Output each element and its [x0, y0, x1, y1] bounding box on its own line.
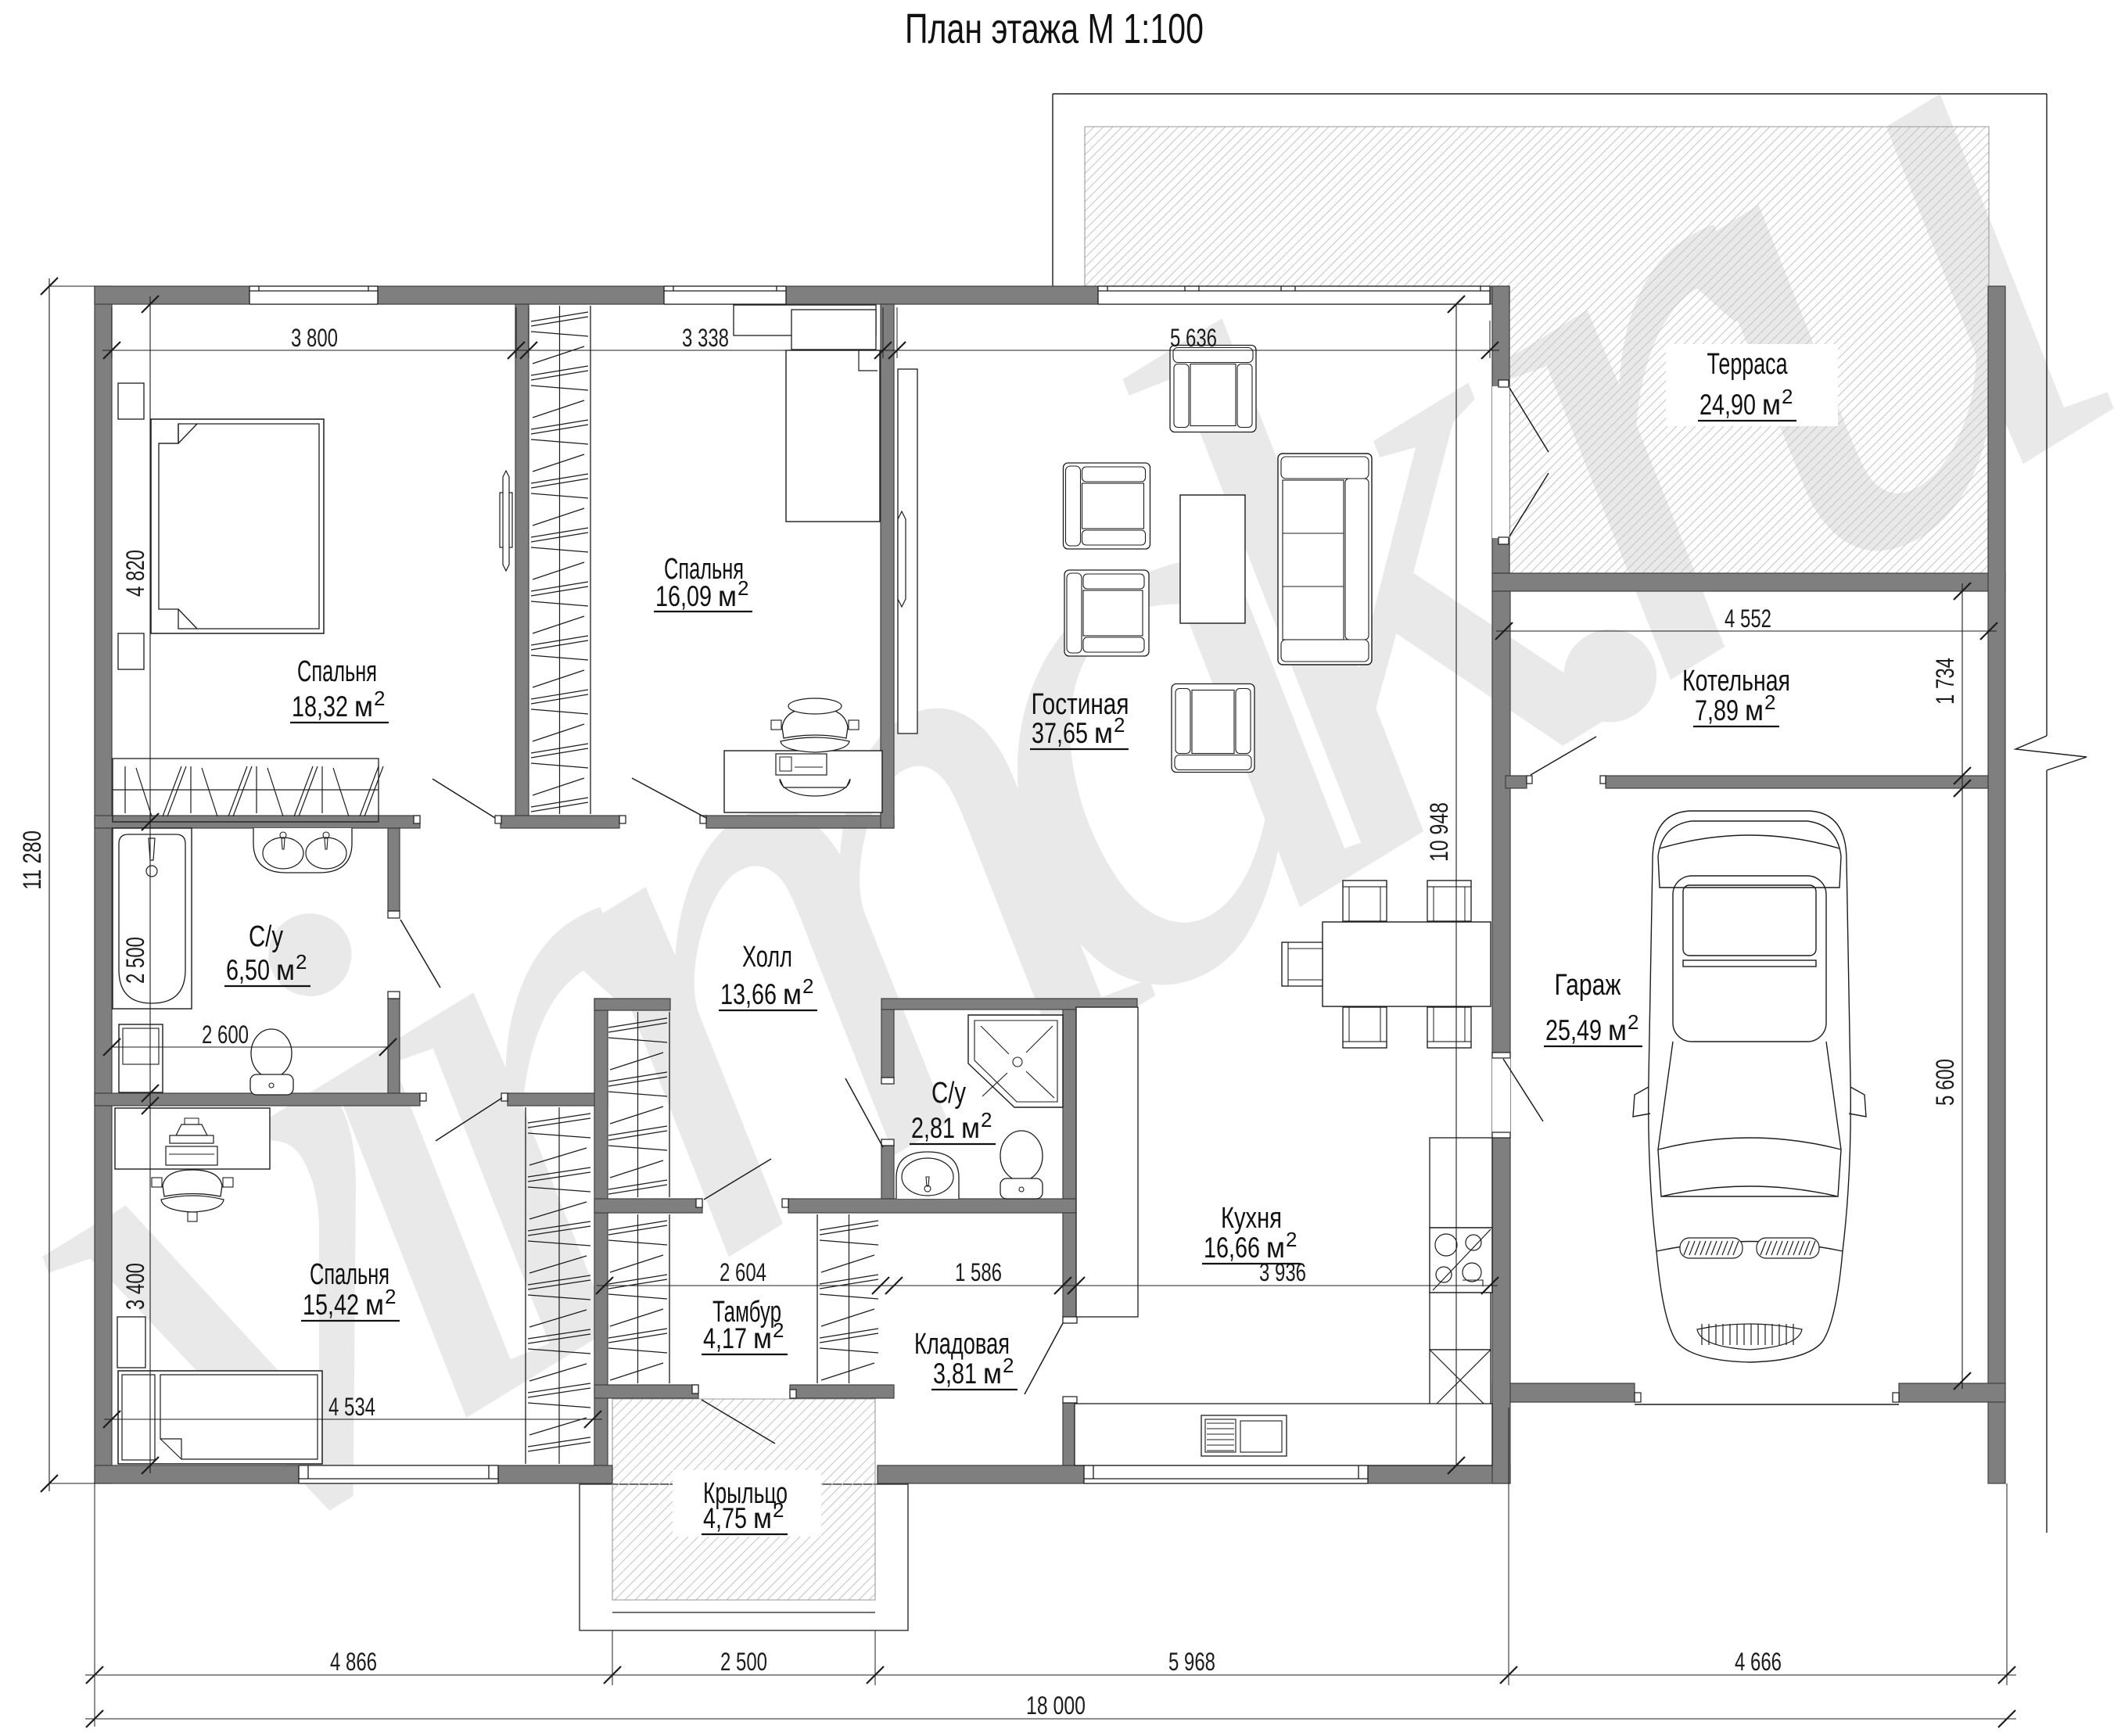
svg-text:3 400: 3 400 — [121, 1263, 149, 1310]
svg-text:Кладовая: Кладовая — [914, 1328, 1010, 1361]
svg-text:3 338: 3 338 — [682, 324, 729, 352]
svg-text:25,49: 25,49 — [1545, 1014, 1602, 1046]
svg-text:м: м — [1745, 694, 1764, 726]
svg-text:2 600: 2 600 — [202, 1020, 249, 1049]
svg-text:м: м — [1094, 717, 1113, 749]
svg-text:5 636: 5 636 — [1170, 324, 1217, 352]
svg-text:18 000: 18 000 — [1026, 1691, 1086, 1720]
svg-text:1 586: 1 586 — [955, 1258, 1002, 1286]
svg-text:24,90: 24,90 — [1699, 389, 1756, 421]
svg-text:4 552: 4 552 — [1725, 604, 1771, 633]
svg-text:м: м — [276, 954, 295, 986]
svg-text:2 604: 2 604 — [720, 1258, 766, 1286]
svg-text:2: 2 — [802, 974, 813, 998]
svg-text:2: 2 — [773, 1498, 784, 1522]
svg-text:4 866: 4 866 — [330, 1648, 377, 1676]
svg-text:4,75: 4,75 — [703, 1502, 747, 1534]
svg-text:2: 2 — [981, 1108, 992, 1132]
svg-text:18,32: 18,32 — [292, 690, 348, 723]
svg-text:2: 2 — [1628, 1010, 1638, 1034]
svg-text:2: 2 — [374, 687, 385, 710]
svg-text:4 666: 4 666 — [1735, 1648, 1782, 1676]
svg-text:4,17: 4,17 — [703, 1322, 747, 1354]
svg-text:Гараж: Гараж — [1555, 969, 1621, 1002]
svg-text:м: м — [365, 1289, 384, 1321]
svg-text:м: м — [753, 1322, 772, 1354]
svg-text:37,65: 37,65 — [1032, 717, 1088, 749]
svg-text:м: м — [1762, 389, 1781, 421]
svg-text:2: 2 — [1286, 1228, 1297, 1251]
svg-text:м: м — [1266, 1232, 1285, 1264]
svg-text:Терраса: Терраса — [1707, 348, 1789, 381]
svg-text:Спальня: Спальня — [310, 1258, 389, 1291]
svg-text:2: 2 — [296, 950, 307, 974]
svg-text:10 948: 10 948 — [1425, 802, 1453, 862]
svg-text:2: 2 — [1114, 713, 1125, 737]
svg-text:2: 2 — [385, 1285, 396, 1308]
svg-text:4 820: 4 820 — [121, 550, 149, 597]
svg-text:2 500: 2 500 — [121, 937, 149, 984]
svg-text:5 600: 5 600 — [1931, 1059, 1959, 1106]
svg-text:м: м — [783, 978, 802, 1010]
svg-text:5 968: 5 968 — [1168, 1648, 1215, 1676]
svg-text:15,42: 15,42 — [303, 1289, 359, 1321]
svg-text:План этажа М 1:100: План этажа М 1:100 — [905, 5, 1204, 52]
svg-text:Спальня: Спальня — [297, 655, 377, 688]
svg-text:11 280: 11 280 — [18, 830, 46, 890]
svg-text:Кухня: Кухня — [1221, 1202, 1282, 1235]
svg-text:м: м — [718, 580, 737, 612]
svg-text:С/у: С/у — [249, 920, 283, 953]
svg-text:2: 2 — [1764, 690, 1775, 714]
svg-text:Холл: Холл — [742, 941, 792, 974]
svg-text:3,81: 3,81 — [933, 1358, 977, 1390]
svg-text:7,89: 7,89 — [1695, 694, 1739, 726]
svg-text:16,09: 16,09 — [655, 580, 712, 612]
svg-text:2: 2 — [773, 1318, 784, 1342]
svg-text:3 800: 3 800 — [291, 324, 338, 352]
svg-text:13,66: 13,66 — [720, 978, 777, 1010]
svg-text:С/у: С/у — [931, 1077, 966, 1110]
svg-text:м: м — [753, 1502, 772, 1534]
svg-text:м: м — [961, 1112, 980, 1144]
svg-text:4 534: 4 534 — [328, 1393, 375, 1421]
svg-text:1 734: 1 734 — [1931, 658, 1959, 705]
svg-text:2: 2 — [1782, 385, 1793, 408]
svg-text:м: м — [983, 1358, 1002, 1390]
svg-text:6,50: 6,50 — [226, 954, 270, 986]
svg-text:2: 2 — [1003, 1354, 1014, 1377]
svg-text:2,81: 2,81 — [911, 1112, 955, 1144]
svg-text:2 500: 2 500 — [720, 1648, 767, 1676]
svg-text:м: м — [1608, 1014, 1627, 1046]
svg-text:м: м — [354, 690, 373, 723]
svg-text:2: 2 — [738, 576, 748, 600]
svg-text:16,66: 16,66 — [1204, 1232, 1260, 1264]
